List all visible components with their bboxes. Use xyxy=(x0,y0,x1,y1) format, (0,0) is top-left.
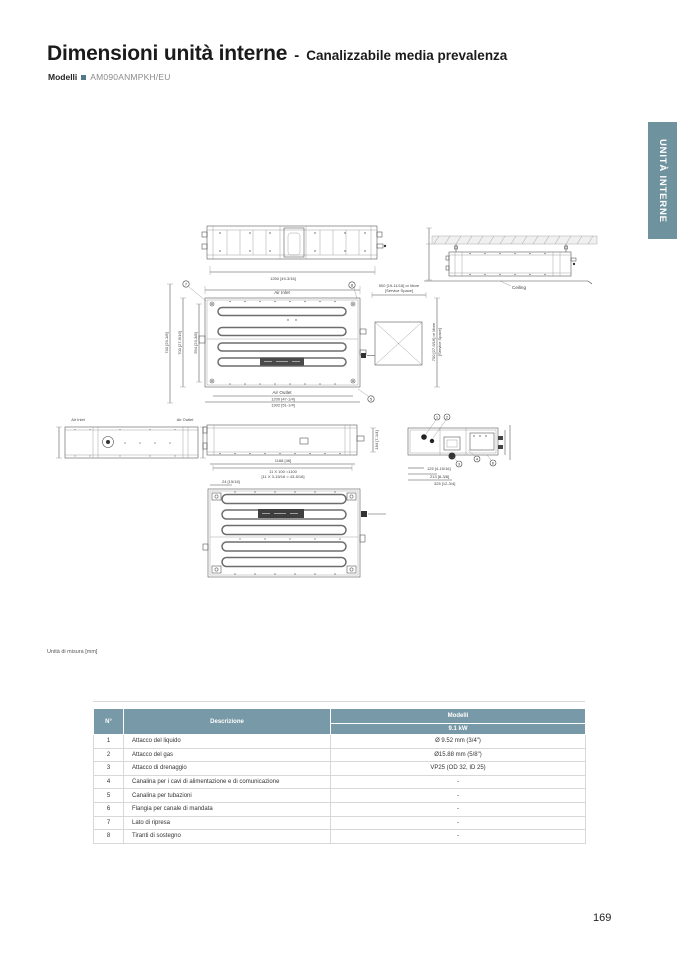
dim-1302: 1302 [51-1/4] xyxy=(271,403,295,408)
callout-6: 6 xyxy=(490,460,496,466)
dim-service-height-note: [Service Space] xyxy=(437,328,442,356)
row-num: 4 xyxy=(94,775,124,789)
view-plan-bottom xyxy=(203,489,386,577)
row-num: 1 xyxy=(94,735,124,749)
view-bottom-front: 184 [7-1/4] 1168 [46] 11 X 100 =1100 [11… xyxy=(203,425,379,485)
models-label: Modelli xyxy=(48,72,77,82)
view-side-section: Air Inlet Air Outlet xyxy=(56,417,206,458)
row-desc: Flangia per canale di mandata xyxy=(124,802,331,816)
callout-5: 5 xyxy=(358,389,374,402)
dim-service-width-note: [Service Space] xyxy=(385,288,413,293)
title-separator: - xyxy=(294,47,299,64)
dim-service-height: 700 [27-9/16] or More xyxy=(431,322,436,361)
dim-125: 125 [4-15/16] xyxy=(427,466,451,471)
air-inlet-label-side: Air Inlet xyxy=(71,417,85,422)
col-header-num: N° xyxy=(94,709,124,735)
air-inlet-label-plan: Air Inlet xyxy=(274,290,290,295)
row-num: 6 xyxy=(94,802,124,816)
row-desc: Canalina per tubazioni xyxy=(124,789,331,803)
dim-325: 325 [12-3/4] xyxy=(434,481,455,486)
unit-of-measure-note: Unità di misura [mm] xyxy=(47,649,97,655)
callout-1: 1 xyxy=(434,414,440,420)
row-desc: Attacco di drenaggio xyxy=(124,762,331,776)
row-desc: Lato di ripresa xyxy=(124,816,331,830)
models-line: Modelli AM090ANMPKH/EU xyxy=(48,72,171,82)
col-header-power: 9.1 kW xyxy=(331,724,586,735)
row-value: - xyxy=(331,775,586,789)
row-desc: Attacco del gas xyxy=(124,748,331,762)
model-code: AM090ANMPKH/EU xyxy=(90,72,170,82)
callout-7: 7 xyxy=(183,281,206,301)
row-value: - xyxy=(331,802,586,816)
table-row: 1 Attacco del liquido Ø 9.52 mm (3/4") xyxy=(94,735,586,749)
air-outlet-label-plan: Air Outlet xyxy=(272,390,292,395)
row-value: Ø15.88 mm (5/8") xyxy=(331,748,586,762)
table-row: 6 Flangia per canale di mandata - xyxy=(94,802,586,816)
spec-table: N° Descrizione Modelli 9.1 kW 1 Attacco … xyxy=(93,708,586,844)
dim-1250: 1250 [49-3/16] xyxy=(270,276,296,281)
ceiling-label: Ceiling xyxy=(512,285,526,290)
table-row: 4 Canalina per i cavi di alimentazione e… xyxy=(94,775,586,789)
row-num: 7 xyxy=(94,816,124,830)
callout-4: 4 xyxy=(474,456,480,462)
dim-184: 184 [7-1/4] xyxy=(374,430,379,449)
view-top-front: 1250 [49-3/16] xyxy=(202,226,386,281)
dim-24: 24 [15/16] xyxy=(222,479,240,484)
row-value: VP25 (OD 32, ID 25) xyxy=(331,762,586,776)
table-row: 7 Lato di ripresa - xyxy=(94,816,586,830)
row-value: - xyxy=(331,830,586,844)
callout-8: 8 xyxy=(349,282,357,299)
bullet-square-icon xyxy=(81,75,86,80)
view-plan-top: Air Inlet 740 [29-1/8] 700 [27-9/16] 594… xyxy=(164,283,442,408)
view-installation-side: Ceiling xyxy=(424,228,597,290)
row-value: Ø 9.52 mm (3/4") xyxy=(331,735,586,749)
technical-drawing: 1250 [49-3/16] xyxy=(0,200,677,620)
air-outlet-label-side: Air Outlet xyxy=(177,417,195,422)
page-number: 169 xyxy=(593,912,611,924)
row-num: 3 xyxy=(94,762,124,776)
row-num: 8 xyxy=(94,830,124,844)
dim-594: 594 [23-3/8] xyxy=(193,332,198,353)
row-desc: Attacco del liquido xyxy=(124,735,331,749)
col-header-desc: Descrizione xyxy=(124,709,331,735)
row-desc: Tiranti di sostegno xyxy=(124,830,331,844)
dim-213: 213 [8-3/8] xyxy=(430,474,449,479)
title-main: Dimensioni unità interne xyxy=(47,42,287,66)
row-value: - xyxy=(331,789,586,803)
dim-700: 700 [27-9/16] xyxy=(177,331,182,355)
table-row: 8 Tiranti di sostegno - xyxy=(94,830,586,844)
dim-pitch-inch: [11 X 3-15/16 = 43-5/16] xyxy=(262,474,305,479)
row-num: 5 xyxy=(94,789,124,803)
table-row: 3 Attacco di drenaggio VP25 (OD 32, ID 2… xyxy=(94,762,586,776)
row-num: 2 xyxy=(94,748,124,762)
page-title: Dimensioni unità interne - Canalizzabile… xyxy=(47,42,507,66)
callout-2: 2 xyxy=(444,414,450,420)
spec-table-wrapper: N° Descrizione Modelli 9.1 kW 1 Attacco … xyxy=(93,701,585,844)
view-end-connections: 125 [4-15/16] 213 [8-3/8] 325 [12-3/4] xyxy=(408,420,510,486)
dim-1200: 1200 [47-1/4] xyxy=(271,397,295,402)
table-row: 2 Attacco del gas Ø15.88 mm (5/8") xyxy=(94,748,586,762)
title-subtitle: Canalizzabile media prevalenza xyxy=(306,48,507,63)
table-row: 5 Canalina per tubazioni - xyxy=(94,789,586,803)
col-header-models: Modelli xyxy=(331,709,586,724)
callout-3: 3 xyxy=(456,461,462,467)
row-desc: Canalina per i cavi di alimentazione e d… xyxy=(124,775,331,789)
dim-1168: 1168 [46] xyxy=(275,458,291,463)
dim-740: 740 [29-1/8] xyxy=(164,332,169,353)
row-value: - xyxy=(331,816,586,830)
